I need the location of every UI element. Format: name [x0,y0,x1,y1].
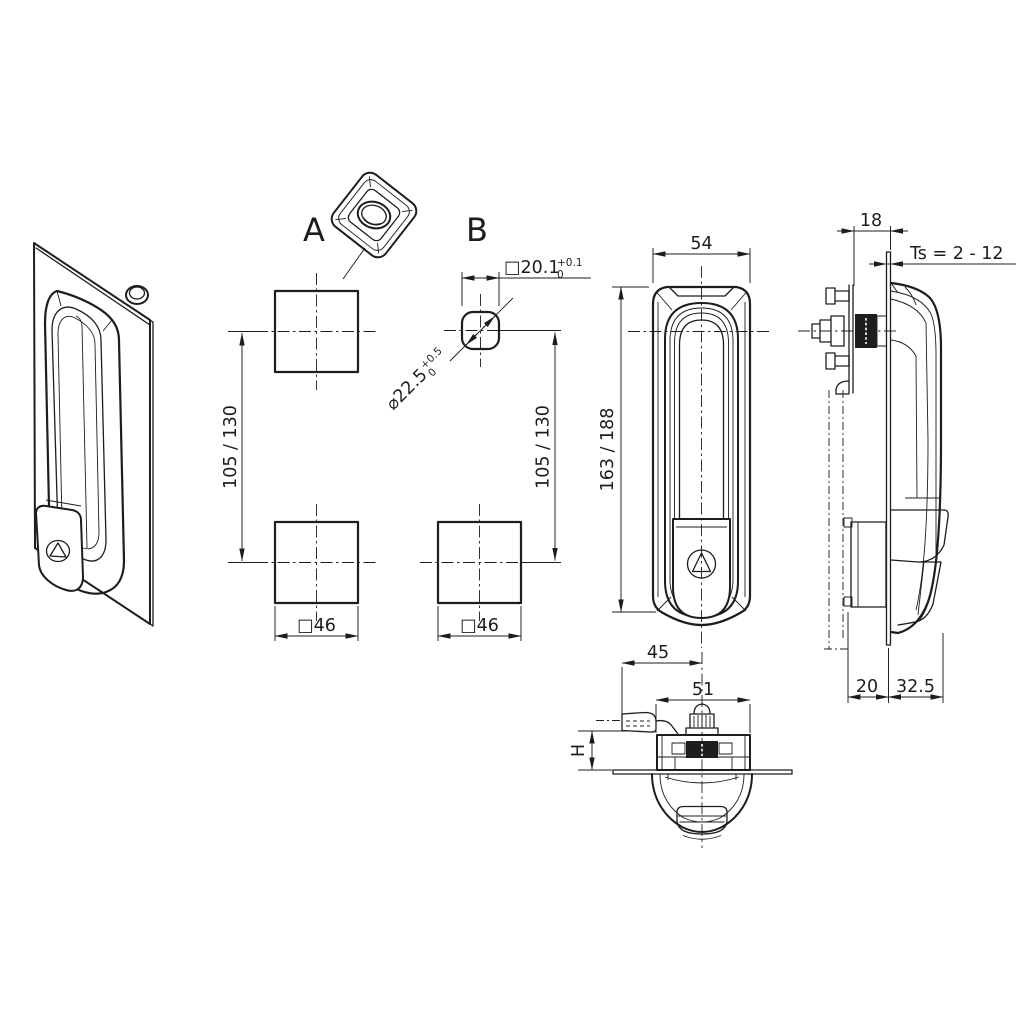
dim-door-thickness: Ts = 2 - 12 [909,244,1004,264]
ext-height [612,287,656,612]
dim-cam-offset: 45 [647,643,669,663]
cutout-pattern-b: 105 / 130 □46 □20.1 +0.1 0 ⌀22.5 +0.5 0 [382,257,591,641]
dim-depth-front: 32.5 [896,677,935,697]
label-detail-a: A [303,211,325,249]
detail-a-leader [343,248,365,279]
dim-depth-behind: 20 [856,677,878,697]
door-plate-bottom [613,770,792,774]
top-bolt [826,288,849,304]
cam-lever [622,713,656,733]
side-handle-inner1 [891,291,936,621]
cam-phantom-lines [824,390,850,649]
side-handle-inner2 [891,299,928,610]
rear-housing [851,522,886,607]
bottom-view: 45 51 H [569,643,792,848]
dim-cam-height: H [569,744,589,757]
side-handle-details [891,283,941,498]
shaft-knob-inner [130,287,145,299]
door-plate-side [887,252,891,645]
dim-line-dia225 [450,298,513,361]
button-flap-3d [36,506,83,591]
dim-handle-length: 163 / 188 [598,408,618,492]
dim-hole-spacing-a: 105 / 130 [221,405,241,489]
front-view: 54 163 / 188 [598,234,770,648]
dim-square-cutout-tol-up: +0.1 [557,257,583,269]
detail-a-part [328,169,421,262]
swing-handle-drawing: A B 105 / 130 □46 105 / 130 □46 □20.1 +0… [0,0,1024,1024]
dim-corner-diameter: ⌀22.5 [382,365,431,414]
dim-square-cutout: □20.1 [504,258,560,278]
dim-square46-a: □46 [297,616,336,636]
adapter-hole-outer [354,198,393,233]
dim-square46-b: □46 [460,616,499,636]
dia225-arrow-sw [466,333,478,345]
dim-hole-spacing-b: 105 / 130 [534,405,554,489]
technical-drawing-page: A B 105 / 130 □46 105 / 130 □46 □20.1 +0… [0,0,1024,1024]
dim-protrusion: 18 [860,211,882,231]
perspective-view [34,243,153,626]
dim-handle-width: 54 [690,234,712,254]
label-detail-b: B [466,211,488,249]
dia225-arrow-ne [483,316,495,328]
cam-lever-neck [656,721,678,734]
dim-square-cutout-tol-dn: 0 [557,269,564,281]
dim-base-width: 51 [692,680,714,700]
cam-lever-dashes [626,721,650,726]
cutout-pattern-a: 105 / 130 □46 [221,273,376,641]
adapter-corner-edges [335,176,412,253]
cap-knurl [694,714,710,727]
side-view: 18 Ts = 2 - 12 20 32.5 [798,211,1016,703]
adapter-outer [328,169,421,262]
ext-protrusion [854,226,891,286]
side-latch-inner [918,562,924,615]
bottom-bolt [826,353,849,369]
adapter-rim [335,176,412,253]
